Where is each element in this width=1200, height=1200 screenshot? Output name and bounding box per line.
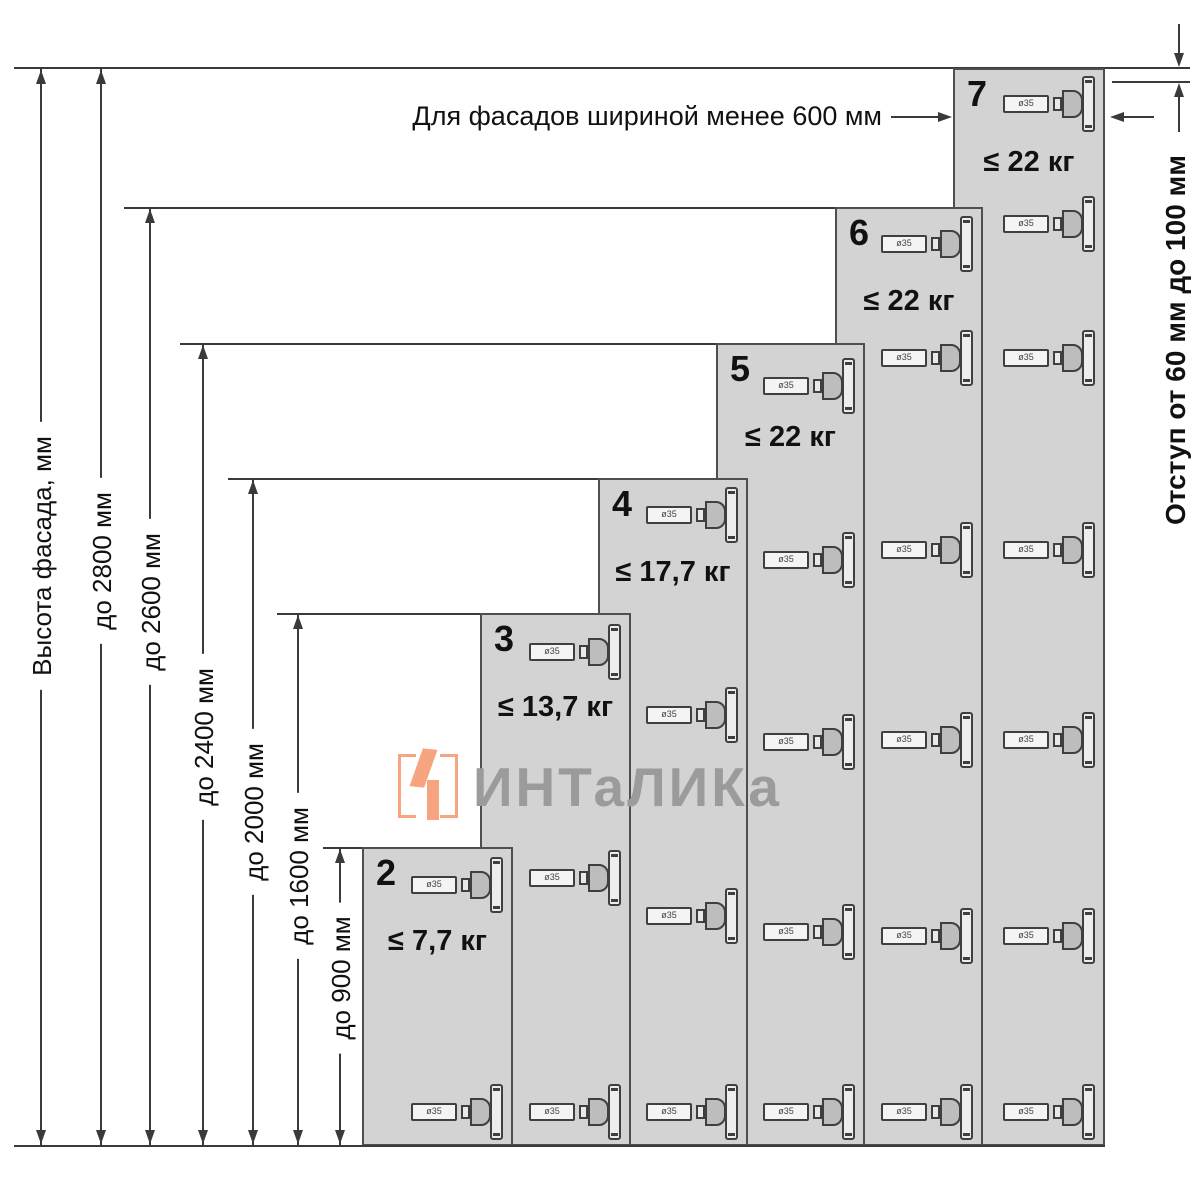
hinge-screw-bottom — [1085, 957, 1092, 960]
hinge-screw-bottom — [845, 1133, 852, 1136]
hinge-joint — [461, 878, 470, 892]
hinge-arm: ø35 — [1003, 1103, 1049, 1121]
hinge-cup — [822, 918, 843, 946]
hinge-joint — [931, 733, 940, 747]
offset-arrow-down-icon — [1174, 53, 1184, 67]
hinge-screw-bottom — [1085, 125, 1092, 128]
hinge-icon: ø35 — [529, 1084, 621, 1140]
hinge-screw-top — [728, 1088, 735, 1091]
hinge-screw-top — [845, 362, 852, 365]
dimension-arrow-up-icon — [96, 70, 106, 84]
hinge-screw-bottom — [963, 1133, 970, 1136]
hinge-joint — [931, 351, 940, 365]
hinge-icon: ø35 — [881, 216, 973, 272]
hinge-screw-top — [1085, 334, 1092, 337]
hinge-screw-top — [845, 718, 852, 721]
hinge-icon: ø35 — [529, 624, 621, 680]
hinge-arm: ø35 — [411, 876, 457, 894]
hinge-cup — [1062, 90, 1083, 118]
height-limit-label: до 900 мм — [324, 902, 358, 1053]
hinge-icon: ø35 — [1003, 196, 1095, 252]
hinge-cup — [940, 1098, 961, 1126]
hinge-joint — [931, 543, 940, 557]
hinge-icon: ø35 — [763, 1084, 855, 1140]
max-weight-label: ≤ 22 кг — [837, 285, 981, 318]
offset-arrow-up-icon — [1174, 83, 1184, 97]
dimension-arrow-down-icon — [36, 1130, 46, 1144]
hinge-cup — [705, 501, 726, 529]
hinge-screw-top — [1085, 526, 1092, 529]
hinge-count-label: 2 — [376, 855, 396, 891]
hinge-joint — [1053, 929, 1062, 943]
hinge-mounting-plate — [608, 850, 621, 906]
hinge-screw-bottom — [845, 407, 852, 410]
max-weight-label: ≤ 13,7 кг — [482, 691, 629, 724]
hinge-arm: ø35 — [1003, 541, 1049, 559]
hinge-joint — [931, 929, 940, 943]
hinge-screw-top — [845, 1088, 852, 1091]
hinge-screw-bottom — [493, 1133, 500, 1136]
hinge-joint — [1053, 97, 1062, 111]
hinge-screw-top — [963, 334, 970, 337]
hinge-arm: ø35 — [1003, 95, 1049, 113]
hinge-mounting-plate — [842, 714, 855, 770]
hinge-screw-bottom — [728, 736, 735, 739]
hinge-arm: ø35 — [1003, 215, 1049, 233]
hinge-mounting-plate — [1082, 76, 1095, 132]
hinge-screw-top — [963, 1088, 970, 1091]
hinge-cup — [940, 922, 961, 950]
dimension-arrow-down-icon — [145, 1130, 155, 1144]
hinge-screw-bottom — [728, 1133, 735, 1136]
hinge-mounting-plate — [842, 532, 855, 588]
hinge-screw-bottom — [1085, 761, 1092, 764]
hinge-arm: ø35 — [411, 1103, 457, 1121]
hinge-cup — [1062, 536, 1083, 564]
dimension-arrow-up-icon — [36, 70, 46, 84]
max-weight-label: ≤ 22 кг — [718, 421, 863, 454]
hinge-arm: ø35 — [881, 541, 927, 559]
facade-width-note: Для фасадов шириной менее 600 мм — [412, 101, 882, 132]
hinge-cup — [940, 344, 961, 372]
dimension-arrow-down-icon — [293, 1130, 303, 1144]
hinge-mounting-plate — [960, 1084, 973, 1140]
hinge-joint — [579, 1105, 588, 1119]
hinge-icon: ø35 — [881, 1084, 973, 1140]
hinge-mounting-plate — [1082, 1084, 1095, 1140]
hinge-arm: ø35 — [881, 1103, 927, 1121]
hinge-icon: ø35 — [881, 330, 973, 386]
hinge-icon: ø35 — [881, 908, 973, 964]
hinge-joint — [813, 735, 822, 749]
height-limit-label: до 2800 мм — [85, 478, 119, 644]
hinge-mounting-plate — [725, 487, 738, 543]
hinge-screw-top — [845, 908, 852, 911]
hinge-icon: ø35 — [646, 687, 738, 743]
hinge-screw-top — [728, 892, 735, 895]
hinge-mounting-plate — [1082, 712, 1095, 768]
hinge-arm: ø35 — [763, 923, 809, 941]
hinge-joint — [931, 1105, 940, 1119]
hinge-mounting-plate — [608, 1084, 621, 1140]
hinge-screw-top — [963, 220, 970, 223]
hinge-arm: ø35 — [763, 377, 809, 395]
offset-label: Отступ от 60 мм до 100 мм — [1160, 155, 1192, 525]
hinge-arm: ø35 — [763, 733, 809, 751]
hinge-icon: ø35 — [529, 850, 621, 906]
hinge-joint — [696, 1105, 705, 1119]
hinge-screw-bottom — [963, 571, 970, 574]
hinge-screw-bottom — [728, 536, 735, 539]
dimension-arrow-up-icon — [198, 345, 208, 359]
hinge-arm: ø35 — [646, 506, 692, 524]
hinge-screw-top — [611, 1088, 618, 1091]
hinge-screw-top — [963, 716, 970, 719]
hinge-cup — [1062, 1098, 1083, 1126]
hinge-icon: ø35 — [1003, 712, 1095, 768]
hinge-joint — [1053, 733, 1062, 747]
hinge-joint — [1053, 351, 1062, 365]
hinge-cup — [940, 230, 961, 258]
hinge-mounting-plate — [960, 908, 973, 964]
hinge-cup — [705, 701, 726, 729]
hinge-mounting-plate — [960, 712, 973, 768]
hinge-screw-top — [493, 861, 500, 864]
dimension-arrow-up-icon — [145, 209, 155, 223]
hinge-mounting-plate — [725, 888, 738, 944]
dimension-arrow-down-icon — [96, 1130, 106, 1144]
hinge-joint — [696, 508, 705, 522]
hinge-screw-top — [611, 628, 618, 631]
facade-width-arrow-line — [891, 116, 939, 118]
hinge-icon: ø35 — [1003, 522, 1095, 578]
hinge-count-label: 6 — [849, 215, 869, 251]
max-weight-label: ≤ 7,7 кг — [364, 925, 511, 958]
hinge-cup — [470, 871, 491, 899]
hinge-arm: ø35 — [763, 551, 809, 569]
hinge-joint — [813, 1105, 822, 1119]
hinge-mounting-plate — [725, 687, 738, 743]
hinge-icon: ø35 — [411, 1084, 503, 1140]
hinge-mounting-plate — [842, 1084, 855, 1140]
facade-bottom-line — [14, 1145, 1105, 1147]
hinge-screw-bottom — [845, 581, 852, 584]
hinge-screw-bottom — [611, 673, 618, 676]
hinge-icon: ø35 — [1003, 330, 1095, 386]
hinge-screw-bottom — [1085, 245, 1092, 248]
hinge-joint — [696, 909, 705, 923]
offset-side-arrow-line — [1124, 116, 1154, 118]
max-weight-label: ≤ 17,7 кг — [600, 556, 746, 589]
hinge-icon: ø35 — [881, 522, 973, 578]
hinge-arm: ø35 — [646, 706, 692, 724]
hinge-cup — [822, 728, 843, 756]
watermark-logo-bracket-right — [440, 754, 458, 818]
dimension-arrow-down-icon — [248, 1130, 258, 1144]
hinge-screw-top — [1085, 912, 1092, 915]
hinge-arm: ø35 — [763, 1103, 809, 1121]
hinge-cup — [470, 1098, 491, 1126]
hinge-screw-top — [1085, 80, 1092, 83]
height-limit-label: до 2400 мм — [187, 654, 221, 820]
hinge-cup — [940, 726, 961, 754]
hinge-icon: ø35 — [1003, 1084, 1095, 1140]
hinge-joint — [1053, 1105, 1062, 1119]
hinge-screw-bottom — [845, 953, 852, 956]
hinge-mounting-plate — [1082, 522, 1095, 578]
dimension-extension-line — [228, 478, 598, 480]
hinge-arm: ø35 — [529, 643, 575, 661]
hinge-screw-bottom — [845, 763, 852, 766]
hinge-joint — [1053, 543, 1062, 557]
hinge-count-label: 5 — [730, 351, 750, 387]
hinge-screw-bottom — [1085, 571, 1092, 574]
hinge-mounting-plate — [1082, 908, 1095, 964]
hinge-cup — [1062, 726, 1083, 754]
hinge-screw-top — [1085, 200, 1092, 203]
hinge-count-label: 3 — [494, 621, 514, 657]
height-limit-label: до 2600 мм — [134, 519, 168, 685]
hinge-cup — [822, 546, 843, 574]
watermark-text: ИНТаЛИКа — [473, 760, 782, 815]
hinge-icon: ø35 — [411, 857, 503, 913]
hinge-arm: ø35 — [881, 731, 927, 749]
hinge-joint — [813, 553, 822, 567]
hinge-mounting-plate — [490, 1084, 503, 1140]
hinge-joint — [1053, 217, 1062, 231]
hinge-mounting-plate — [960, 330, 973, 386]
hinge-icon: ø35 — [1003, 908, 1095, 964]
hinge-cup — [588, 864, 609, 892]
hinge-mounting-plate — [1082, 196, 1095, 252]
hinge-screw-bottom — [963, 379, 970, 382]
hinge-screw-bottom — [963, 265, 970, 268]
hinge-screw-top — [963, 526, 970, 529]
hinge-cup — [822, 1098, 843, 1126]
hinge-mounting-plate — [725, 1084, 738, 1140]
hinge-arm: ø35 — [1003, 927, 1049, 945]
hinge-count-label: 7 — [967, 76, 987, 112]
dimension-arrow-down-icon — [198, 1130, 208, 1144]
hinge-mounting-plate — [1082, 330, 1095, 386]
hinge-joint — [696, 708, 705, 722]
hinge-cup — [1062, 210, 1083, 238]
hinge-cup — [1062, 344, 1083, 372]
hinge-mounting-plate — [960, 216, 973, 272]
hinge-screw-bottom — [963, 761, 970, 764]
hinge-arm: ø35 — [881, 349, 927, 367]
hinge-arm: ø35 — [529, 869, 575, 887]
hinge-cup — [588, 638, 609, 666]
hinge-icon: ø35 — [1003, 76, 1095, 132]
hinge-icon: ø35 — [763, 532, 855, 588]
hinge-screw-bottom — [611, 899, 618, 902]
hinge-screw-top — [963, 912, 970, 915]
hinge-arm: ø35 — [646, 907, 692, 925]
dimension-extension-line — [180, 343, 716, 345]
offset-arrow-bottom-line — [1178, 96, 1180, 132]
hinge-screw-top — [845, 536, 852, 539]
hinge-arm: ø35 — [646, 1103, 692, 1121]
hinge-screw-bottom — [493, 906, 500, 909]
hinge-screw-top — [728, 491, 735, 494]
hinge-screw-top — [1085, 716, 1092, 719]
hinge-arm: ø35 — [1003, 731, 1049, 749]
hinge-screw-bottom — [1085, 1133, 1092, 1136]
offset-side-arrow-icon — [1110, 112, 1124, 122]
hinge-cup — [705, 1098, 726, 1126]
hinge-mounting-plate — [490, 857, 503, 913]
hinge-screw-bottom — [1085, 379, 1092, 382]
dimension-arrow-up-icon — [335, 849, 345, 863]
hinge-icon: ø35 — [881, 712, 973, 768]
hinge-cup — [822, 372, 843, 400]
hinge-count-label: 4 — [612, 486, 632, 522]
height-limit-label: до 1600 мм — [282, 793, 316, 959]
dimension-arrow-up-icon — [293, 615, 303, 629]
hinge-screw-top — [728, 691, 735, 694]
hinge-screw-bottom — [728, 937, 735, 940]
hinge-screw-top — [1085, 1088, 1092, 1091]
hinge-joint — [813, 925, 822, 939]
hinge-arm: ø35 — [881, 235, 927, 253]
hinge-cup — [940, 536, 961, 564]
hinge-icon: ø35 — [763, 358, 855, 414]
watermark-logo-bar — [427, 780, 439, 820]
hinge-mounting-plate — [842, 904, 855, 960]
hinge-arm: ø35 — [529, 1103, 575, 1121]
hinge-arm: ø35 — [881, 927, 927, 945]
facade-width-arrow-icon — [938, 112, 952, 122]
hinge-icon: ø35 — [646, 487, 738, 543]
hinge-mounting-plate — [608, 624, 621, 680]
hinge-quantity-diagram: Для фасадов шириной менее 600 мм Отступ … — [0, 0, 1200, 1200]
hinge-icon: ø35 — [763, 904, 855, 960]
hinge-arm: ø35 — [1003, 349, 1049, 367]
hinge-screw-bottom — [963, 957, 970, 960]
hinge-mounting-plate — [842, 358, 855, 414]
hinge-cup — [588, 1098, 609, 1126]
hinge-cup — [705, 902, 726, 930]
offset-arrow-top-line — [1178, 24, 1180, 56]
dimension-arrow-down-icon — [335, 1130, 345, 1144]
facade-height-axis-label: Высота фасада, мм — [25, 422, 59, 690]
hinge-joint — [579, 645, 588, 659]
hinge-icon: ø35 — [646, 888, 738, 944]
hinge-mounting-plate — [960, 522, 973, 578]
hinge-screw-top — [611, 854, 618, 857]
hinge-joint — [579, 871, 588, 885]
height-limit-label: до 2000 мм — [237, 729, 271, 895]
hinge-joint — [931, 237, 940, 251]
hinge-cup — [1062, 922, 1083, 950]
door-column-2: 2≤ 7,7 кгø35ø35 — [362, 847, 513, 1146]
dimension-extension-line — [277, 613, 480, 615]
dimension-extension-line — [124, 207, 835, 209]
max-weight-label: ≤ 22 кг — [955, 146, 1103, 179]
hinge-joint — [813, 379, 822, 393]
dimension-arrow-up-icon — [248, 480, 258, 494]
hinge-screw-bottom — [611, 1133, 618, 1136]
hinge-icon: ø35 — [646, 1084, 738, 1140]
hinge-joint — [461, 1105, 470, 1119]
hinge-screw-top — [493, 1088, 500, 1091]
